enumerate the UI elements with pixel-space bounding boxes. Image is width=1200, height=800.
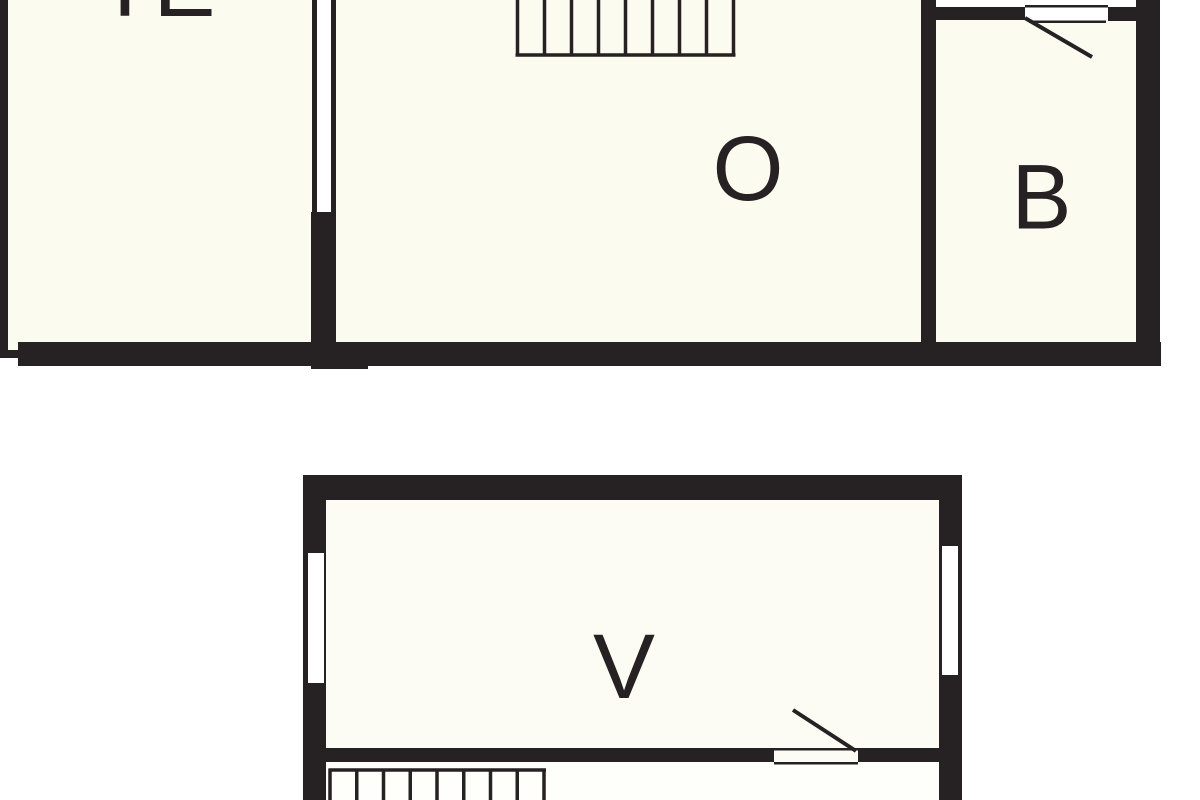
svg-text:TE: TE — [97, 0, 216, 36]
svg-text:V: V — [593, 616, 655, 718]
svg-text:B: B — [1012, 147, 1072, 249]
svg-text:O: O — [713, 118, 784, 220]
